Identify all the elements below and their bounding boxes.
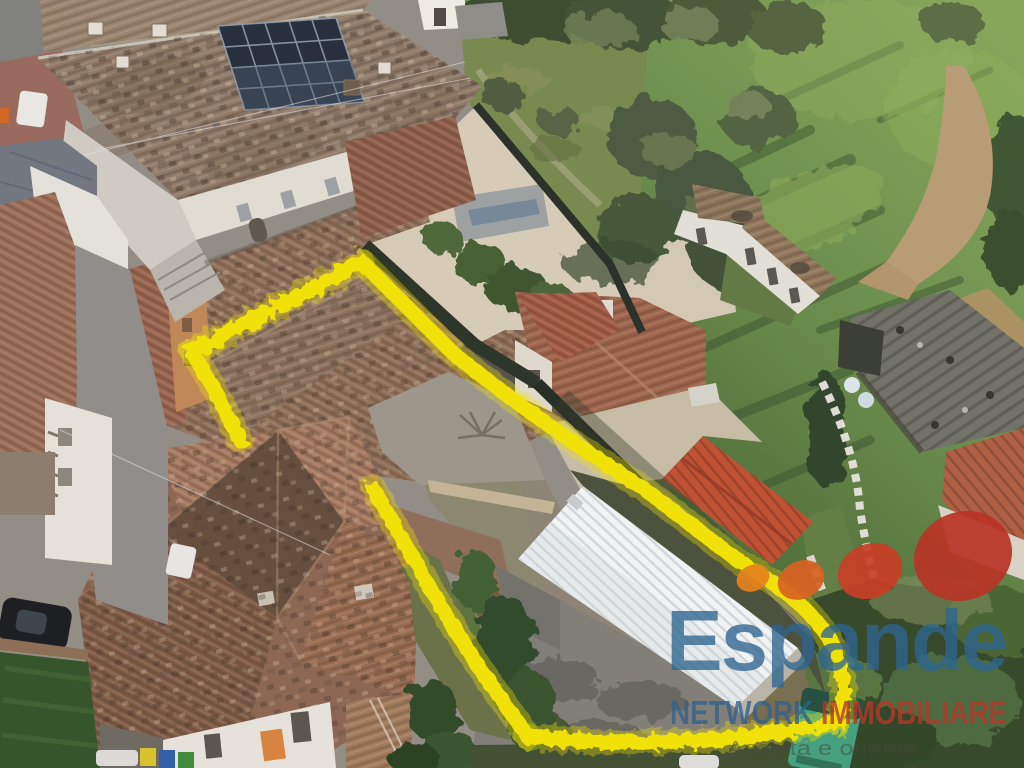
- svg-text:Espande: Espande: [666, 594, 1006, 689]
- svg-text:NETWORK IMMOBILIARE: NETWORK IMMOBILIARE: [670, 695, 1007, 732]
- svg-text:Ascolta e orienta...: Ascolta e orienta...: [727, 738, 939, 760]
